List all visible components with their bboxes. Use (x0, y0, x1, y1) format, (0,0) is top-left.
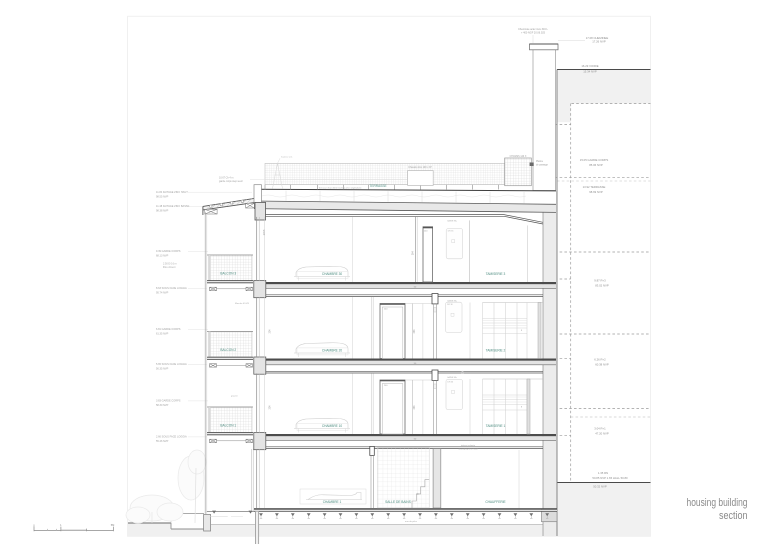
svg-text:GAINE EA.: GAINE EA. (447, 300, 457, 303)
svg-text:1.35 RN: 1.35 RN (598, 471, 608, 475)
svg-text:DR 36: DR 36 (448, 381, 455, 383)
svg-text:6.81 GARDE CORPS: 6.81 GARDE CORPS (156, 327, 181, 331)
svg-text:mur de piles: mur de piles (405, 520, 418, 523)
svg-text:fibre ciment: fibre ciment (163, 266, 176, 269)
svg-text:5.65 SOUS FACE LOGGIA: 5.65 SOUS FACE LOGGIA (156, 362, 187, 366)
svg-text:278.5: 278.5 (264, 229, 266, 235)
svg-text:68.13 NVP: 68.13 NVP (156, 253, 169, 257)
svg-text:TERRASSE: TERRASSE (369, 184, 386, 188)
svg-text:55.46 NVP: 55.46 NVP (156, 439, 169, 443)
svg-text:50.85 NVP 1.65 HALL 50.80: 50.85 NVP 1.65 HALL 50.80 (592, 476, 628, 480)
svg-text:garde corps step seuil: garde corps step seuil (219, 180, 243, 183)
svg-text:60.38 NVP: 60.38 NVP (595, 363, 609, 367)
svg-text:11.84 FAITAGE ZINC HAUT: 11.84 FAITAGE ZINC HAUT (156, 190, 188, 194)
svg-text:section: section (719, 510, 748, 522)
svg-text:GAINE EA.: GAINE EA. (447, 376, 457, 379)
svg-text:Marche 47x29: Marche 47x29 (235, 302, 250, 305)
svg-text:11.48 FAITAGE ZINC BASSE: 11.48 FAITAGE ZINC BASSE (156, 204, 190, 208)
svg-text:56.35 NVP: 56.35 NVP (156, 366, 169, 370)
svg-text:CHASSIS 140 X: CHASSIS 140 X (510, 155, 527, 158)
svg-text:TAMISERIE 3: TAMISERIE 3 (486, 272, 506, 276)
svg-text:13.92 TERRASSE: 13.92 TERRASSE (583, 185, 606, 189)
svg-text:85.06 NVP: 85.06 NVP (589, 163, 603, 167)
svg-text:5M: 5M (111, 523, 115, 527)
svg-text:61.35 NVP: 61.35 NVP (156, 331, 169, 335)
svg-text:8.63 SOUS FACE LOGGIA: 8.63 SOUS FACE LOGGIA (156, 286, 187, 290)
svg-text:CHAMBRE 30: CHAMBRE 30 (322, 272, 343, 276)
svg-text:15.05 GARDE CORPS: 15.05 GARDE CORPS (580, 158, 609, 162)
svg-text:50.32 NVP: 50.32 NVP (593, 485, 607, 489)
svg-text:TAMISERIE 1: TAMISERIE 1 (486, 424, 506, 428)
svg-text:3.83 GARDE CORPS: 3.83 GARDE CORPS (156, 399, 181, 403)
svg-text:98.69 NVP: 98.69 NVP (589, 190, 603, 194)
svg-text:15.34 NVP: 15.34 NVP (583, 70, 597, 74)
svg-text:98.38 NVP: 98.38 NVP (156, 208, 169, 212)
svg-text:BALCON 3: BALCON 3 (220, 271, 236, 275)
svg-text:hauteur ant.: hauteur ant. (281, 156, 293, 159)
svg-text:DR 36: DR 36 (448, 231, 455, 233)
svg-text:58.30 NVP: 58.30 NVP (156, 403, 169, 407)
svg-text:2.50 E 0.6 m: 2.50 E 0.6 m (163, 263, 177, 266)
svg-text:+ 400 NGF 20.06.025: + 400 NGF 20.06.025 (521, 32, 546, 35)
svg-text:Platine: Platine (536, 160, 544, 163)
svg-text:gravier: gravier (231, 395, 238, 398)
svg-text:BALCON 1: BALCON 1 (220, 423, 236, 427)
svg-text:GAINE EA.: GAINE EA. (447, 219, 457, 222)
svg-text:95.74 NVP: 95.74 NVP (156, 290, 169, 294)
svg-text:DR 36: DR 36 (447, 304, 454, 306)
svg-text:17.26 NVP: 17.26 NVP (592, 40, 606, 44)
svg-text:Terrasse étanchéité multicouch: Terrasse étanchéité multicouche végétali… (318, 186, 362, 189)
svg-text:de passage: de passage (536, 164, 549, 166)
svg-text:toiture isolante: toiture isolante (461, 444, 476, 447)
svg-text:CHAUFFERIE: CHAUFFERIE (485, 500, 505, 504)
svg-text:3.04 R+1: 3.04 R+1 (594, 427, 606, 431)
svg-text:CHAMBRE 1: CHAMBRE 1 (323, 500, 342, 504)
svg-text:47.20 NVP: 47.20 NVP (595, 432, 609, 436)
svg-text:CHAMBRE 10: CHAMBRE 10 (322, 424, 343, 428)
svg-text:2.66 SOUS FACE LOGGIA: 2.66 SOUS FACE LOGGIA (156, 435, 187, 439)
svg-text:housing building: housing building (687, 497, 748, 509)
svg-text:9.39 GARDE CORPS: 9.39 GARDE CORPS (156, 249, 181, 253)
svg-text:au polystyrène haut: au polystyrène haut (458, 447, 477, 450)
svg-text:6.26 R+2: 6.26 R+2 (594, 358, 606, 362)
svg-text:TAMISERIE 2: TAMISERIE 2 (486, 348, 506, 352)
svg-text:83.02 NVP: 83.02 NVP (595, 284, 609, 288)
svg-text:SALLE DE BAINS: SALLE DE BAINS (385, 500, 411, 504)
svg-text:16.29 VOIRIE: 16.29 VOIRIE (581, 64, 598, 68)
svg-text:98.55 NVP: 98.55 NVP (156, 194, 169, 198)
svg-text:CHAMBRE 20: CHAMBRE 20 (322, 348, 343, 352)
svg-text:Chassis vitré 100 x 97: Chassis vitré 100 x 97 (408, 166, 432, 169)
svg-text:9.87 R+3: 9.87 R+3 (594, 279, 606, 283)
svg-text:BALCON 2: BALCON 2 (220, 348, 236, 352)
